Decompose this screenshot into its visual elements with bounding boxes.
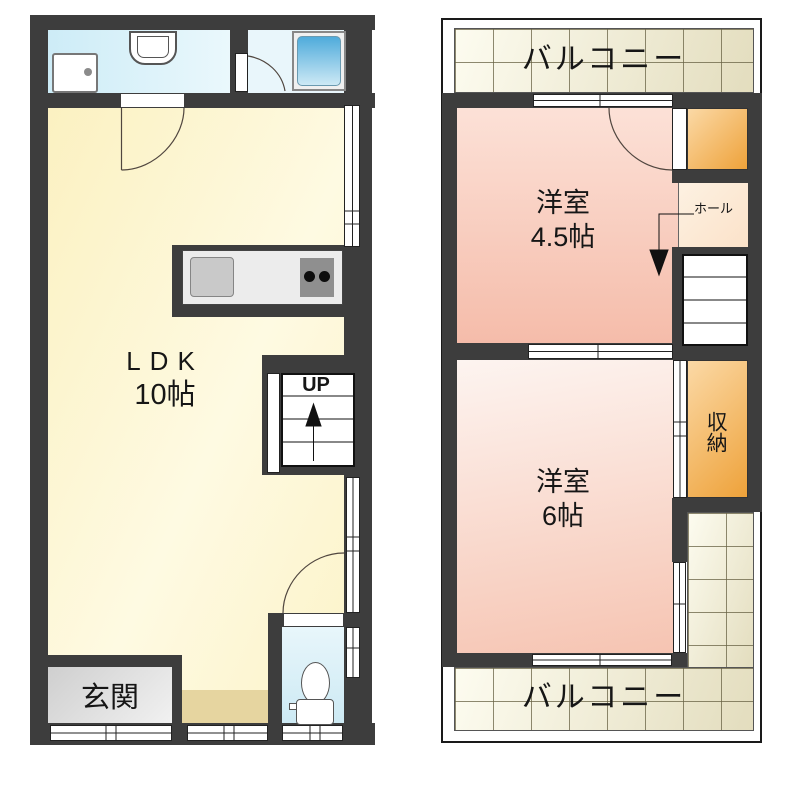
- balcony-top-sliding-window: [533, 94, 673, 107]
- bottom-window-toilet: [282, 725, 343, 741]
- room-45-size-label: 4.5帖: [463, 222, 663, 254]
- entrance-label: 玄関: [48, 681, 172, 715]
- wall-entrance-right: [172, 655, 182, 723]
- room-6-size-label: 6帖: [463, 501, 663, 533]
- closet-sliding-door: [673, 360, 687, 498]
- balcony-bottom-label: バルコニー: [454, 680, 754, 715]
- toilet-door-opening: [284, 614, 343, 626]
- wall-toilet-left: [268, 613, 282, 723]
- room-45-name-label: 洋室: [463, 188, 663, 220]
- stove-burner-left-icon: [304, 271, 315, 282]
- hall-label: ホール: [694, 201, 754, 216]
- staircase-second-floor: [682, 254, 748, 346]
- ldk-label: LDK: [95, 346, 235, 377]
- balcony-bottom-sliding-window: [532, 654, 672, 666]
- rooms-partition-sliding-door: [528, 344, 673, 359]
- wall2-hall-top: [672, 170, 762, 183]
- balcony-top-label: バルコニー: [454, 42, 754, 77]
- floor-plan-canvas: LDK 10帖 UP 玄関: [0, 0, 800, 800]
- room-6-name-label: 洋室: [463, 467, 663, 499]
- toilet-window: [346, 627, 360, 678]
- stair-side-strip: [267, 373, 280, 473]
- ldk-size-label: 10帖: [95, 378, 235, 412]
- stairs-up-label: UP: [288, 374, 344, 398]
- stove-burner-right-icon: [319, 271, 330, 282]
- entrance-door-window: [50, 725, 172, 741]
- wall-entrance-top: [30, 655, 182, 667]
- toilet-tank: [296, 699, 334, 725]
- wall2-left: [442, 93, 457, 667]
- room-45-doorway: [672, 108, 687, 170]
- wall2-stairs-left: [672, 247, 682, 347]
- washroom-door-opening: [121, 94, 184, 107]
- ldk-side-window: [346, 477, 360, 613]
- toilet-bowl: [301, 662, 330, 704]
- wall2-right: [748, 93, 762, 512]
- wall2-room6-right: [672, 498, 687, 562]
- room-6-side-window: [673, 562, 686, 653]
- hall-upper-floor: [687, 108, 748, 170]
- wall-left: [30, 15, 48, 745]
- bottom-window-center: [187, 725, 268, 741]
- toilet-handle: [289, 703, 297, 710]
- closet-label: 収納: [704, 397, 727, 467]
- wall-top: [30, 15, 375, 30]
- washer-drain-icon: [84, 68, 92, 76]
- balcony-right: [687, 512, 754, 668]
- bath-door-leaf: [235, 53, 248, 92]
- bathtub: [297, 36, 341, 86]
- kitchen-sink: [190, 257, 234, 297]
- vanity-basin: [137, 36, 169, 58]
- kitchen-window: [344, 105, 360, 247]
- wall-sanitary-bottom: [30, 93, 375, 108]
- step-up-strip: [182, 690, 268, 723]
